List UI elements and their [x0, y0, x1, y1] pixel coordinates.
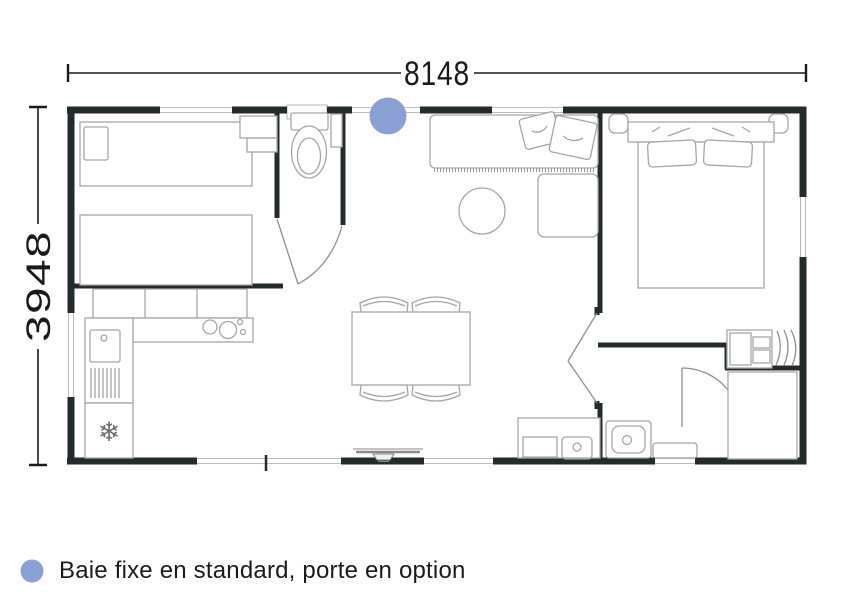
- legend-text: Baie fixe en standard, porte en option: [59, 557, 466, 585]
- sofa: [430, 111, 598, 237]
- floorplan-page: 8148 3948: [0, 0, 848, 600]
- vanity: [727, 330, 772, 368]
- dining-set: [352, 297, 470, 401]
- dimension-width-label: 8148: [404, 55, 470, 93]
- floorplan-drawing: 8148 3948: [0, 0, 848, 600]
- double-bed: [609, 114, 788, 288]
- bay-marker: [370, 98, 407, 135]
- legend: Baie fixe en standard, porte en option: [20, 557, 466, 585]
- sofa-pillow-2: [549, 115, 598, 160]
- shower-unit: [518, 418, 600, 459]
- bench: [653, 443, 697, 458]
- washbasin: [606, 421, 651, 458]
- wardrobe: [728, 372, 797, 459]
- bifold-doors: [568, 313, 597, 403]
- wc-door: [277, 219, 342, 284]
- twin-beds: [80, 116, 277, 285]
- dining-table: [352, 312, 470, 385]
- legend-marker-icon: [20, 559, 44, 583]
- towel-rail: [776, 330, 796, 366]
- round-table: [459, 188, 505, 234]
- snowflake-icon: ❄: [98, 417, 121, 448]
- dimension-height-label: 3948: [20, 230, 58, 342]
- toilet: [291, 113, 342, 178]
